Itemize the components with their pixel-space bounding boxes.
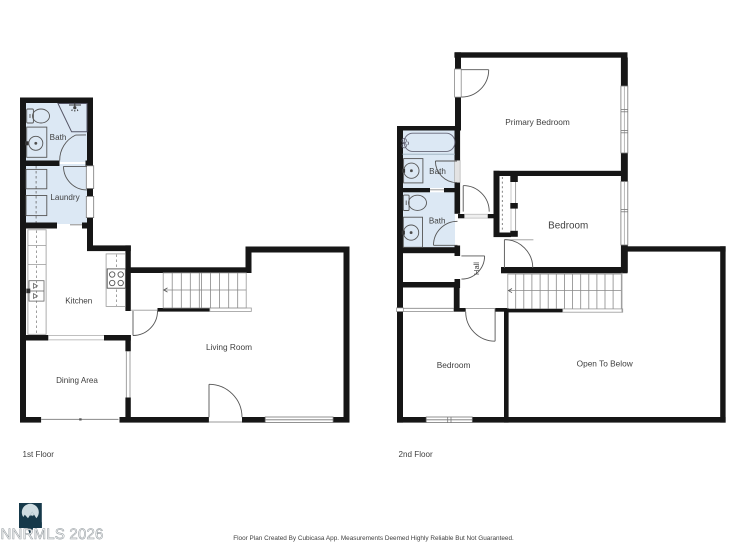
svg-text:Bath: Bath — [429, 216, 446, 225]
svg-text:Bedroom: Bedroom — [437, 360, 471, 370]
svg-text:Bedroom: Bedroom — [548, 221, 588, 232]
svg-text:1st Floor: 1st Floor — [23, 450, 55, 459]
svg-text:Primary Bedroom: Primary Bedroom — [505, 117, 570, 127]
svg-text:Floor Plan Created By Cubicasa: Floor Plan Created By Cubicasa App. Meas… — [233, 535, 514, 542]
svg-text:Laundry: Laundry — [50, 193, 80, 202]
svg-text:Open To Below: Open To Below — [577, 359, 634, 369]
svg-text:NNRMLS 2026: NNRMLS 2026 — [1, 526, 104, 543]
svg-text:Dining Area: Dining Area — [56, 376, 98, 385]
svg-text:Bath: Bath — [50, 133, 67, 142]
svg-text:Kitchen: Kitchen — [65, 296, 92, 305]
svg-text:Living Room: Living Room — [206, 342, 252, 352]
svg-text:Bath: Bath — [429, 167, 446, 176]
svg-text:2nd Floor: 2nd Floor — [399, 450, 433, 459]
svg-text:Hall: Hall — [472, 262, 481, 275]
